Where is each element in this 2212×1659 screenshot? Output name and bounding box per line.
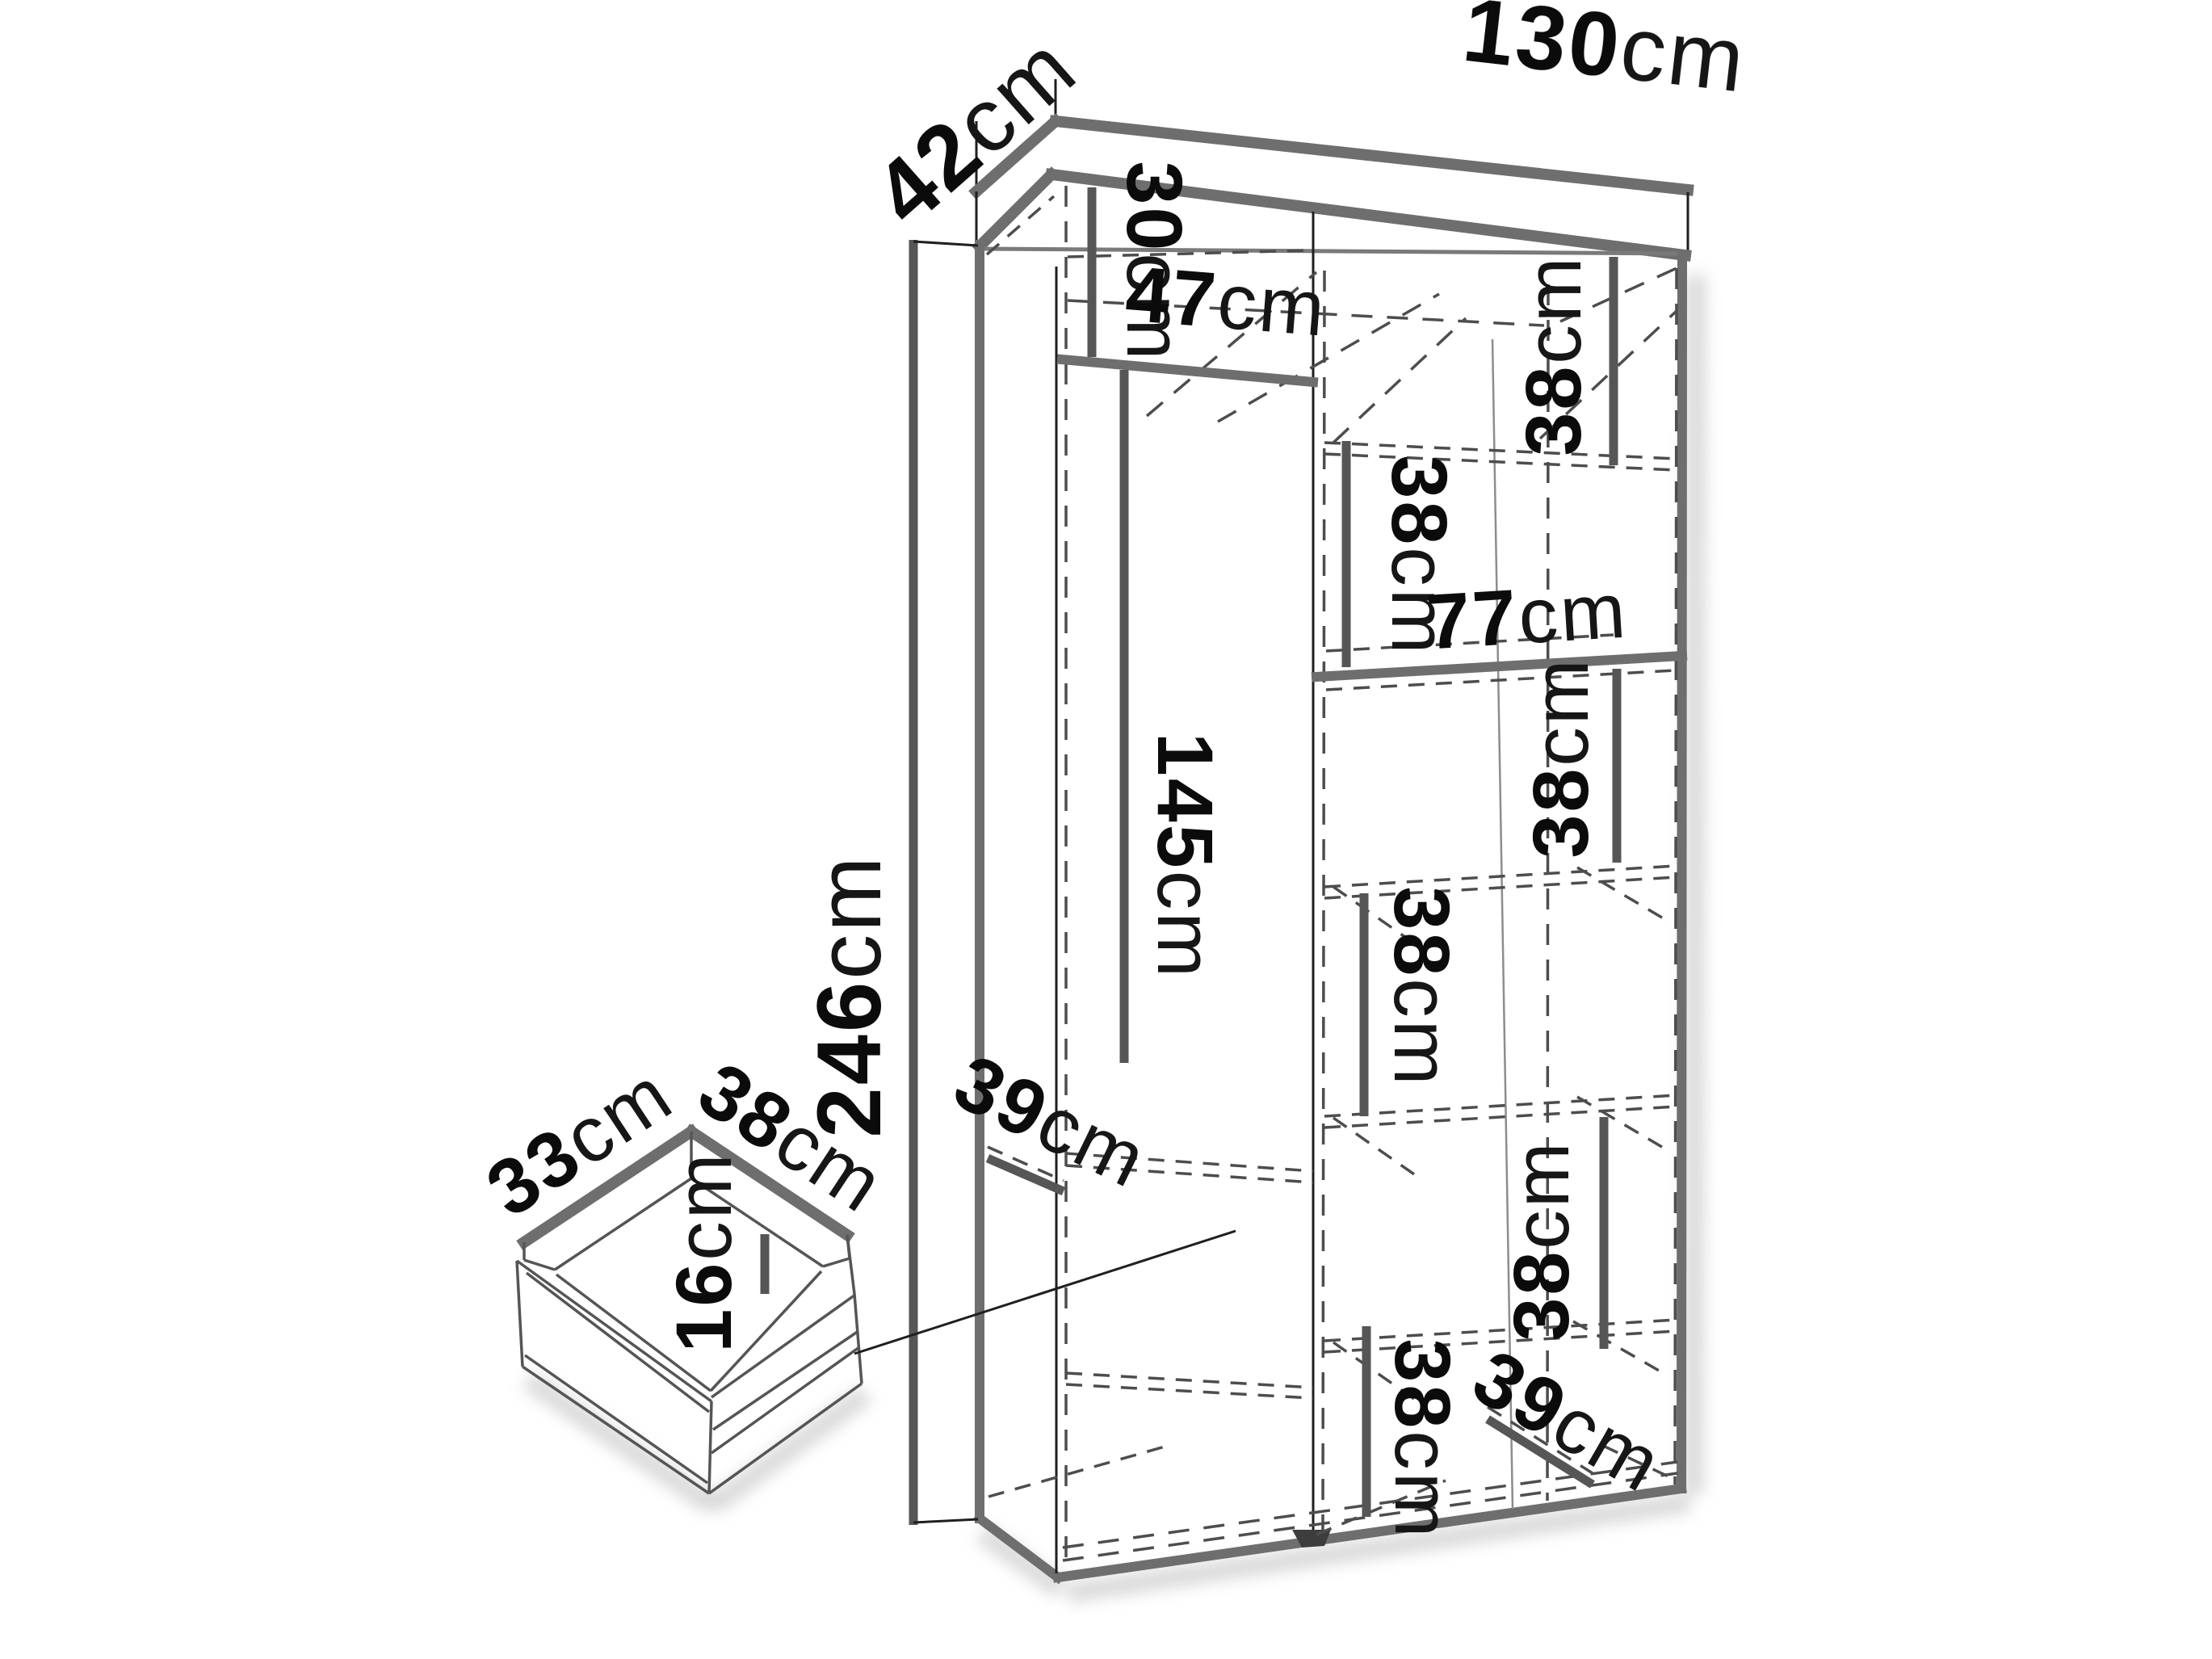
diagram-canvas: 42cm 130cm 246cm 30cm 47cm 38cm 38cm 77c… [0, 0, 2212, 1659]
wardrobe-dimension-diagram: 42cm 130cm 246cm 30cm 47cm 38cm 38cm 77c… [0, 0, 2212, 1659]
top-panel [976, 79, 1688, 255]
dim-right-width-77: 77cm [1424, 566, 1630, 666]
dim-width-130: 130cm [1459, 0, 1752, 111]
dim-height-246: 246cm [799, 854, 900, 1137]
dim-shelf-38-6: 38cm [1379, 1338, 1467, 1539]
dim-shelf-38-4: 38cm [1378, 886, 1466, 1087]
dim-left-width-47: 47cm [1123, 249, 1330, 352]
dim-shelf-38-5: 38cm [1497, 1140, 1585, 1341]
dim-depth-39-right: 39cm [1459, 1332, 1677, 1509]
dim-shelf-38-1: 38cm [1509, 254, 1597, 456]
dim-hanging-145: 145cm [1141, 733, 1229, 980]
dimension-labels: 42cm 130cm 246cm 30cm 47cm 38cm 38cm 77c… [472, 0, 1752, 1540]
dim-shelf-38-3: 38cm [1517, 657, 1605, 858]
dim-depth-42: 42cm [855, 16, 1095, 245]
dim-drawer-16: 16cm [660, 1151, 748, 1352]
